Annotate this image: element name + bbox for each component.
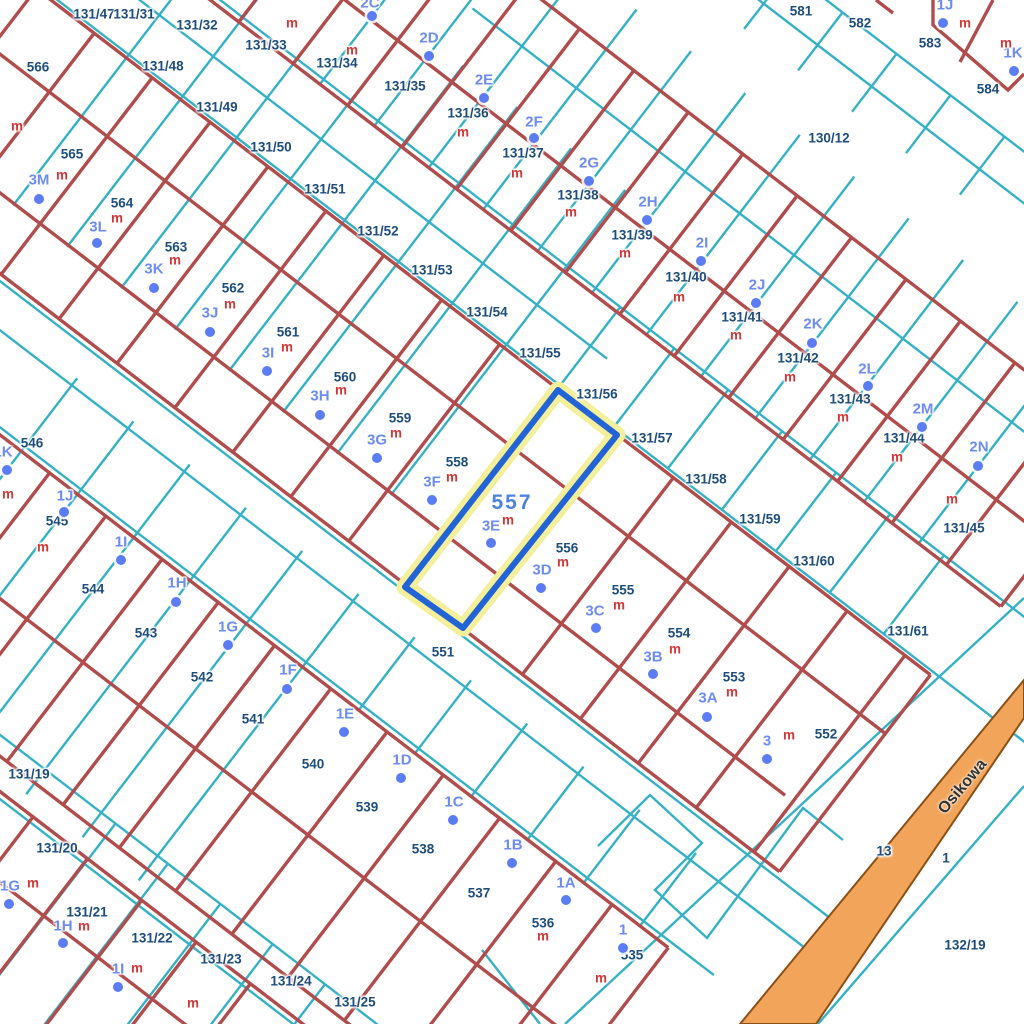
building-number-label: 1G: [0, 878, 20, 895]
building-number-label: 1I: [115, 534, 128, 551]
building-number-label: 3A: [698, 690, 717, 707]
building-number-label: 3B: [643, 649, 662, 666]
building-point: [696, 256, 706, 266]
building-point: [479, 93, 489, 103]
building-point: [863, 381, 873, 391]
building-number-label: 1E: [336, 706, 354, 723]
area-marker: m: [457, 125, 469, 140]
parcel-number-label: 131/32: [176, 18, 217, 33]
area-marker: m: [783, 728, 795, 743]
building-number-label: 1J: [57, 488, 74, 505]
building-number-label: 3C: [585, 603, 604, 620]
parcel-number-label: 582: [849, 16, 872, 31]
area-marker: m: [187, 996, 199, 1011]
area-marker: m: [669, 642, 681, 657]
parcel-number-label: 130/12: [808, 131, 849, 146]
building-point: [339, 727, 349, 737]
building-number-label: 1: [619, 922, 627, 939]
building-number-label: 3: [763, 733, 771, 750]
parcel-number-label: 131/20: [36, 841, 77, 856]
parcel-number-label: 537: [468, 886, 491, 901]
building-point: [917, 422, 927, 432]
building-point: [315, 410, 325, 420]
parcel-number-label: 131/41: [721, 310, 762, 325]
building-point: [591, 623, 601, 633]
area-marker: m: [619, 246, 631, 261]
building-point: [536, 583, 546, 593]
building-point: [2, 465, 12, 475]
building-number-label: 3F: [423, 474, 441, 491]
building-number-label: 1I: [112, 961, 125, 978]
parcel-number-label: 131/34: [316, 56, 357, 71]
parcel-number-label: 540: [302, 757, 325, 772]
parcel-number-label: 584: [977, 82, 1000, 97]
building-point: [448, 815, 458, 825]
parcel-number-label: 583: [919, 36, 942, 51]
area-marker: m: [959, 16, 971, 31]
building-number-label: 2H: [638, 194, 657, 211]
building-number-label: 1B: [503, 837, 522, 854]
area-marker: m: [11, 119, 23, 134]
parcel-number-label: 131/52: [357, 224, 398, 239]
building-point: [642, 215, 652, 225]
parcel-number-label: 564: [111, 196, 134, 211]
building-number-label: 1J: [937, 0, 954, 14]
building-point: [4, 899, 14, 909]
building-point: [561, 895, 571, 905]
building-point: [973, 461, 983, 471]
building-point: [702, 712, 712, 722]
parcel-number-label: 131/38: [557, 188, 598, 203]
parcel-number-label: 131/58: [685, 472, 726, 487]
parcel-number-label: 561: [277, 325, 300, 340]
building-point: [751, 298, 761, 308]
area-marker: m: [2, 487, 14, 502]
area-marker: m: [281, 340, 293, 355]
parcel-number-label: 551: [432, 645, 455, 660]
building-number-label: 1A: [556, 875, 575, 892]
building-number-label: 2I: [696, 235, 709, 252]
building-number-label: 3G: [367, 432, 387, 449]
building-point: [205, 327, 215, 337]
area-marker: m: [837, 410, 849, 425]
parcel-number-label: 131/33: [245, 38, 286, 53]
building-point: [282, 684, 292, 694]
parcel-number-label: 554: [668, 626, 691, 641]
building-number-label: 2N: [969, 439, 988, 456]
building-number-label: 3K: [144, 261, 163, 278]
building-point: [762, 754, 772, 764]
building-number-label: 1D: [392, 752, 411, 769]
parcel-number-label: 131/59: [739, 512, 780, 527]
parcel-number-label: 538: [412, 842, 435, 857]
parcel-number-label: 132/19: [944, 938, 985, 953]
highlighted-parcel-label: 557: [491, 491, 532, 515]
parcel-number-label: 131/39: [611, 228, 652, 243]
parcel-number-label: 553: [723, 670, 746, 685]
area-marker: m: [335, 383, 347, 398]
parcel-number-label: 131/51: [304, 182, 345, 197]
parcel-number-label: 131/23: [200, 952, 241, 967]
building-point: [396, 773, 406, 783]
area-marker: m: [673, 290, 685, 305]
parcel-number-label: 546: [21, 436, 44, 451]
building-number-label: 2M: [913, 401, 934, 418]
building-point: [58, 938, 68, 948]
parcel-number-label: 131/55: [519, 346, 560, 361]
parcel-number-label: 543: [135, 626, 158, 641]
building-number-label: 1C: [444, 794, 463, 811]
area-marker: m: [56, 168, 68, 183]
area-marker: m: [390, 426, 402, 441]
parcel-number-label: 131/57: [631, 431, 672, 446]
area-marker: m: [595, 971, 607, 986]
parcel-number-label: 542: [191, 670, 214, 685]
building-number-label: 2C: [360, 0, 379, 12]
parcel-number-label: 131/56: [576, 387, 617, 402]
parcel-number-label: 131/45: [943, 521, 984, 536]
building-point: [807, 338, 817, 348]
area-marker: m: [537, 929, 549, 944]
building-number-label: 2E: [475, 72, 493, 89]
area-marker: m: [224, 297, 236, 312]
area-marker: m: [286, 16, 298, 31]
parcel-number-label: 131/25: [334, 995, 375, 1010]
area-marker: m: [169, 253, 181, 268]
building-point: [424, 51, 434, 61]
parcel-number-label: 131/43: [829, 392, 870, 407]
parcel-number-label: 131/22: [131, 931, 172, 946]
building-point: [34, 194, 44, 204]
area-marker: m: [946, 492, 958, 507]
building-point: [938, 18, 948, 28]
parcel-number-label: 13: [876, 844, 891, 859]
area-marker: m: [78, 919, 90, 934]
area-marker: m: [27, 876, 39, 891]
parcel-number-label: 131/37: [502, 146, 543, 161]
building-point: [529, 133, 539, 143]
parcel-number-label: 1: [942, 851, 950, 866]
building-point: [149, 283, 159, 293]
building-number-label: 3L: [89, 219, 107, 236]
building-point: [171, 597, 181, 607]
building-number-label: 1F: [279, 662, 297, 679]
parcel-number-label: 131/31: [113, 7, 154, 22]
parcel-number-label: 562: [222, 281, 245, 296]
area-marker: m: [613, 598, 625, 613]
parcel-number-label: 581: [790, 4, 813, 19]
area-marker: m: [730, 328, 742, 343]
building-number-label: 3H: [310, 388, 329, 405]
parcel-number-label: 131/54: [466, 305, 507, 320]
area-marker: m: [511, 166, 523, 181]
building-number-label: 1H: [53, 918, 72, 935]
parcel-number-label: 552: [815, 727, 838, 742]
parcel-number-label: 565: [61, 147, 84, 162]
parcel-number-label: 566: [27, 60, 50, 75]
building-point: [507, 858, 517, 868]
parcel-number-label: 559: [389, 411, 412, 426]
cadastral-map[interactable]: 131/47131/31131/32131/33131/34131/35131/…: [0, 0, 1024, 1024]
parcel-number-label: 131/47: [73, 7, 114, 22]
parcel-number-label: 131/24: [270, 974, 311, 989]
parcel-number-label: 131/36: [447, 106, 488, 121]
building-point: [59, 507, 69, 517]
parcel-number-label: 555: [612, 583, 635, 598]
area-marker: m: [1000, 36, 1012, 51]
building-number-label: 1K: [0, 444, 13, 461]
parcel-number-label: 131/35: [384, 79, 425, 94]
building-number-label: 3D: [532, 562, 551, 579]
building-point: [116, 555, 126, 565]
area-marker: m: [446, 470, 458, 485]
area-marker: m: [111, 211, 123, 226]
building-number-label: 2D: [419, 30, 438, 47]
area-marker: m: [131, 961, 143, 976]
parcel-number-label: 131/42: [777, 351, 818, 366]
parcel-number-label: 131/53: [411, 263, 452, 278]
building-point: [367, 11, 377, 21]
building-number-label: 3E: [482, 518, 500, 535]
area-marker: m: [557, 555, 569, 570]
area-marker: m: [565, 205, 577, 220]
area-marker: m: [726, 685, 738, 700]
building-number-label: 2L: [858, 361, 876, 378]
building-point: [1009, 66, 1019, 76]
building-number-label: 1H: [167, 575, 186, 592]
building-number-label: 2J: [749, 277, 766, 294]
building-point: [262, 366, 272, 376]
building-point: [486, 538, 496, 548]
parcel-number-label: 131/49: [196, 100, 237, 115]
parcel-number-label: 131/40: [665, 270, 706, 285]
parcel-number-label: 131/60: [793, 554, 834, 569]
building-number-label: 2K: [803, 316, 822, 333]
building-number-label: 1G: [218, 619, 238, 636]
building-point: [618, 943, 628, 953]
building-point: [372, 453, 382, 463]
parcel-number-label: 131/44: [883, 431, 924, 446]
building-point: [92, 238, 102, 248]
area-marker: m: [891, 450, 903, 465]
building-point: [113, 982, 123, 992]
area-marker: m: [37, 540, 49, 555]
building-point: [648, 669, 658, 679]
parcel-number-label: 131/19: [8, 767, 49, 782]
building-point: [584, 176, 594, 186]
building-number-label: 2G: [579, 155, 599, 172]
area-marker: m: [346, 43, 358, 58]
parcel-number-label: 539: [356, 800, 379, 815]
parcel-number-label: 558: [446, 455, 469, 470]
building-number-label: 3M: [29, 172, 50, 189]
building-point: [427, 495, 437, 505]
building-number-label: 2F: [525, 114, 543, 131]
building-number-label: 3J: [202, 305, 219, 322]
parcel-number-label: 131/50: [250, 140, 291, 155]
parcel-number-label: 541: [242, 712, 265, 727]
parcel-number-label: 131/61: [887, 624, 928, 639]
parcel-number-label: 544: [82, 582, 105, 597]
parcel-number-label: 131/48: [142, 59, 183, 74]
building-point: [223, 640, 233, 650]
area-marker: m: [784, 370, 796, 385]
map-label-layer: 131/47131/31131/32131/33131/34131/35131/…: [0, 0, 1024, 1024]
parcel-number-label: 556: [556, 541, 579, 556]
building-number-label: 3I: [262, 345, 275, 362]
